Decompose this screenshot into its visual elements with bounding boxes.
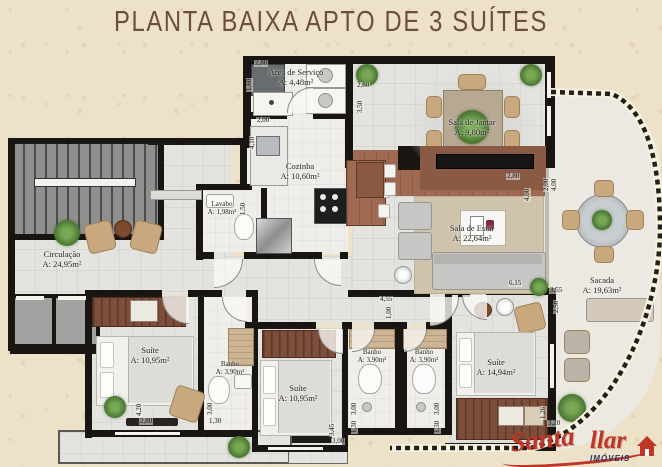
side-chair-2: [384, 182, 396, 196]
room-area: A: 9,80m²: [448, 128, 495, 138]
dim-banho1-h: 3,00: [207, 402, 214, 416]
floor-terrace-2: [288, 450, 348, 464]
page-title: PLANTA BAIXA APTO DE 3 SUÍTES: [60, 6, 603, 39]
room-area: A: 3,90m²: [410, 356, 439, 364]
dim-banho3-w: 1,30: [434, 420, 441, 434]
side-table: [356, 162, 384, 198]
wall-top: [243, 56, 555, 64]
dining-chair-3: [504, 96, 520, 118]
pillow-suite2-b: [263, 398, 276, 426]
dim-suite3-h: 1,26: [540, 406, 547, 420]
armchair-2: [398, 232, 432, 260]
plant-sacada: [558, 394, 586, 422]
dim-jantar-h: 3,50: [357, 100, 364, 114]
dim-suite2-h: 3,45: [329, 423, 336, 437]
cooktop: [314, 188, 348, 224]
plant-suite1: [104, 396, 126, 418]
room-name: Banho: [410, 348, 439, 356]
dim-banho1-w: 1,30: [208, 418, 222, 425]
drain-banho2: [362, 402, 372, 412]
wall-outer-left: [8, 138, 15, 351]
floor-lamp: [394, 266, 412, 284]
pillow-suite1-b: [100, 372, 114, 398]
sink-banho1: [234, 374, 252, 389]
room-area: A: 4,48m²: [269, 78, 324, 88]
window-suite2: [268, 447, 323, 450]
burner-1: [320, 194, 326, 200]
dim-estar-len: 6,15: [508, 280, 522, 287]
side-table-suite3: [496, 298, 514, 316]
armchair-1: [398, 202, 432, 230]
room-area: A: 19,63m²: [583, 286, 622, 296]
room-label-circulacao: Circulação A: 24,95m²: [43, 250, 82, 270]
plant-terrace: [228, 436, 250, 458]
dim-sacada-low-w: 3,55: [549, 287, 563, 294]
window-jantar-2: [547, 106, 551, 136]
plant-living: [530, 278, 548, 296]
pillow-suite2-a: [263, 366, 276, 394]
sacada-armchair-2: [564, 358, 590, 382]
pillow-suite3-a: [459, 338, 472, 362]
tv: [436, 154, 534, 169]
room-label-area-servico: Área de Serviço A: 4,48m²: [269, 68, 324, 88]
wall-north-connector: [148, 138, 251, 145]
dim-suite2-w: 3,00: [331, 438, 345, 445]
wall-suite1-top-a: [85, 290, 162, 297]
dim-servico-w: 2,80: [254, 60, 268, 67]
sacada-chair-3: [594, 180, 614, 197]
dim-sacada-h: 4,00: [551, 178, 558, 192]
house-door: [645, 449, 649, 456]
sacada-chair-2: [626, 210, 644, 230]
wall-kitchen-bottom-a: [196, 252, 214, 259]
dim-banho2-h: 3,00: [351, 402, 358, 416]
dining-chair-1: [426, 96, 442, 118]
dim-jantar-w: 2,80: [356, 82, 370, 89]
dim-lavabo-h: 1,50: [240, 202, 247, 216]
toilet-banho3: [412, 364, 436, 394]
room-label-suite2: Suíte A: 10,95m²: [279, 384, 318, 404]
room-name: Lavabo: [208, 200, 237, 208]
room-area: A: 10,95m²: [131, 356, 170, 366]
sacada-sofa: [586, 298, 654, 322]
room-area: A: 22,64m²: [450, 234, 494, 244]
dim-hall-w: 4,55: [379, 296, 393, 303]
room-label-lavabo: Lavabo A: 1,98m²: [208, 200, 237, 216]
room-name: Banho: [358, 348, 387, 356]
room-area: A: 3,90m²: [216, 368, 245, 376]
room-area: A: 1,98m²: [208, 208, 237, 216]
sacada-armchair-1: [564, 330, 590, 354]
dining-chair-5: [458, 74, 486, 90]
room-label-cozinha: Cozinha A: 10,60m²: [281, 162, 320, 182]
dim-banho2-w: 1,30: [351, 420, 358, 434]
plant-circulacao: [54, 220, 80, 246]
wall-suite1-left: [85, 290, 92, 438]
room-label-sala-estar: Sala de Estar A: 22,64m²: [450, 224, 494, 244]
room-name: Banho: [216, 360, 245, 368]
room-label-banho2: Banho A: 3,90m²: [358, 348, 387, 364]
dim-estar-h: 4,00: [524, 188, 531, 202]
elevator-1-door: [16, 296, 44, 300]
window-suite1: [115, 432, 180, 435]
wardrobe-suite1-box: [130, 300, 158, 322]
dim-banho3-h: 3,00: [434, 402, 441, 416]
room-label-suite1: Suíte A: 10,95m²: [131, 346, 170, 366]
console-shelf: [150, 190, 202, 200]
wall-circ-kitchen: [240, 138, 247, 190]
burner-4: [332, 206, 338, 212]
tub-basin-2: [318, 93, 333, 108]
house-icon: [636, 436, 658, 458]
dim-sacada-w: 2,00: [543, 178, 550, 192]
room-label-suite3: Suíte A: 14,94m²: [477, 358, 516, 378]
wall-lavabo-top: [196, 184, 252, 190]
drain-banho3: [416, 402, 426, 412]
sacada-table-plant: [592, 210, 612, 230]
fridge: [256, 218, 292, 254]
room-area: A: 14,94m²: [477, 368, 516, 378]
stool-3: [378, 204, 390, 218]
dim-suite1-h: 4,20: [136, 403, 143, 417]
dim-sacada-low-h: 2,50: [553, 300, 560, 314]
toilet-banho1: [208, 376, 230, 404]
wall-suite1-top-b: [188, 290, 222, 297]
toilet-banho2: [358, 364, 382, 394]
logo-subtitle: IMÓVEIS: [590, 454, 630, 463]
wall-banho1-suite2: [252, 292, 258, 450]
elevator-2-door: [58, 296, 86, 300]
sofa-back-cushions: [434, 254, 542, 264]
dim-estar-w: 2,80: [506, 173, 520, 180]
room-label-banho1: Banho A: 3,90m²: [216, 360, 245, 376]
window-jantar-1: [547, 72, 551, 98]
washer-knob: [269, 100, 274, 105]
sacada-chair-1: [562, 210, 580, 230]
logo-brand-b: llar: [590, 427, 626, 455]
wall-elevators-bottom: [8, 344, 96, 351]
dim-cozinha-w: 2,00: [256, 117, 270, 124]
room-area: A: 24,95m²: [43, 260, 82, 270]
dim-cozinha-h: 4,10: [249, 136, 256, 150]
lavabo-toilet: [234, 214, 254, 240]
pillow-suite1-a: [100, 342, 114, 368]
room-area: A: 3,90m²: [358, 356, 387, 364]
agency-logo: Santa llar IMÓVEIS: [498, 424, 662, 467]
room-label-banho3: Banho A: 3,90m²: [410, 348, 439, 364]
dim-servico-h: 1,60: [246, 78, 253, 92]
tv-suite2: [292, 436, 332, 443]
room-label-sacada: Sacada A: 19,63m²: [583, 276, 622, 296]
room-area: A: 10,95m²: [279, 394, 318, 404]
room-label-sala-jantar: Sala de Jantar A: 9,80m²: [448, 118, 495, 138]
plant-jantar-right: [520, 64, 542, 86]
kitchen-sink: [256, 136, 280, 156]
side-chair-1: [384, 164, 396, 178]
burner-3: [320, 206, 326, 212]
wall-kitchen-bottom-c: [340, 252, 348, 259]
wardrobe-suite3-box1: [498, 406, 524, 426]
dim-hall-h: 1,00: [386, 306, 393, 320]
stairs-handrail: [34, 178, 136, 187]
room-area: A: 10,60m²: [281, 172, 320, 182]
sacada-chair-4: [594, 246, 614, 263]
pillow-suite3-b: [459, 364, 472, 388]
round-table-circ: [114, 220, 132, 238]
burner-2: [332, 194, 338, 200]
dim-suite1-w: 2,80: [139, 418, 153, 425]
floor-plan-image: PLANTA BAIXA APTO DE 3 SUÍTES: [0, 0, 662, 467]
window-suite3: [550, 344, 554, 388]
